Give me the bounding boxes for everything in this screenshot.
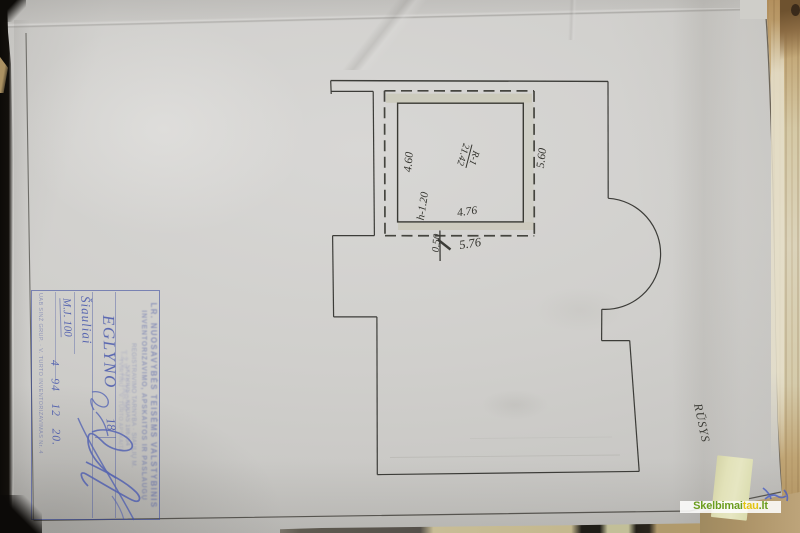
- svg-text:5.60: 5.60: [535, 147, 549, 169]
- svg-text:h-1.20: h-1.20: [415, 191, 431, 221]
- svg-text:RŪSYS: RŪSYS: [691, 401, 713, 444]
- svg-text:4.76: 4.76: [456, 205, 478, 220]
- svg-text:0.50: 0.50: [431, 233, 444, 253]
- svg-text:4.60: 4.60: [402, 151, 416, 172]
- svg-text:5.76: 5.76: [458, 235, 483, 252]
